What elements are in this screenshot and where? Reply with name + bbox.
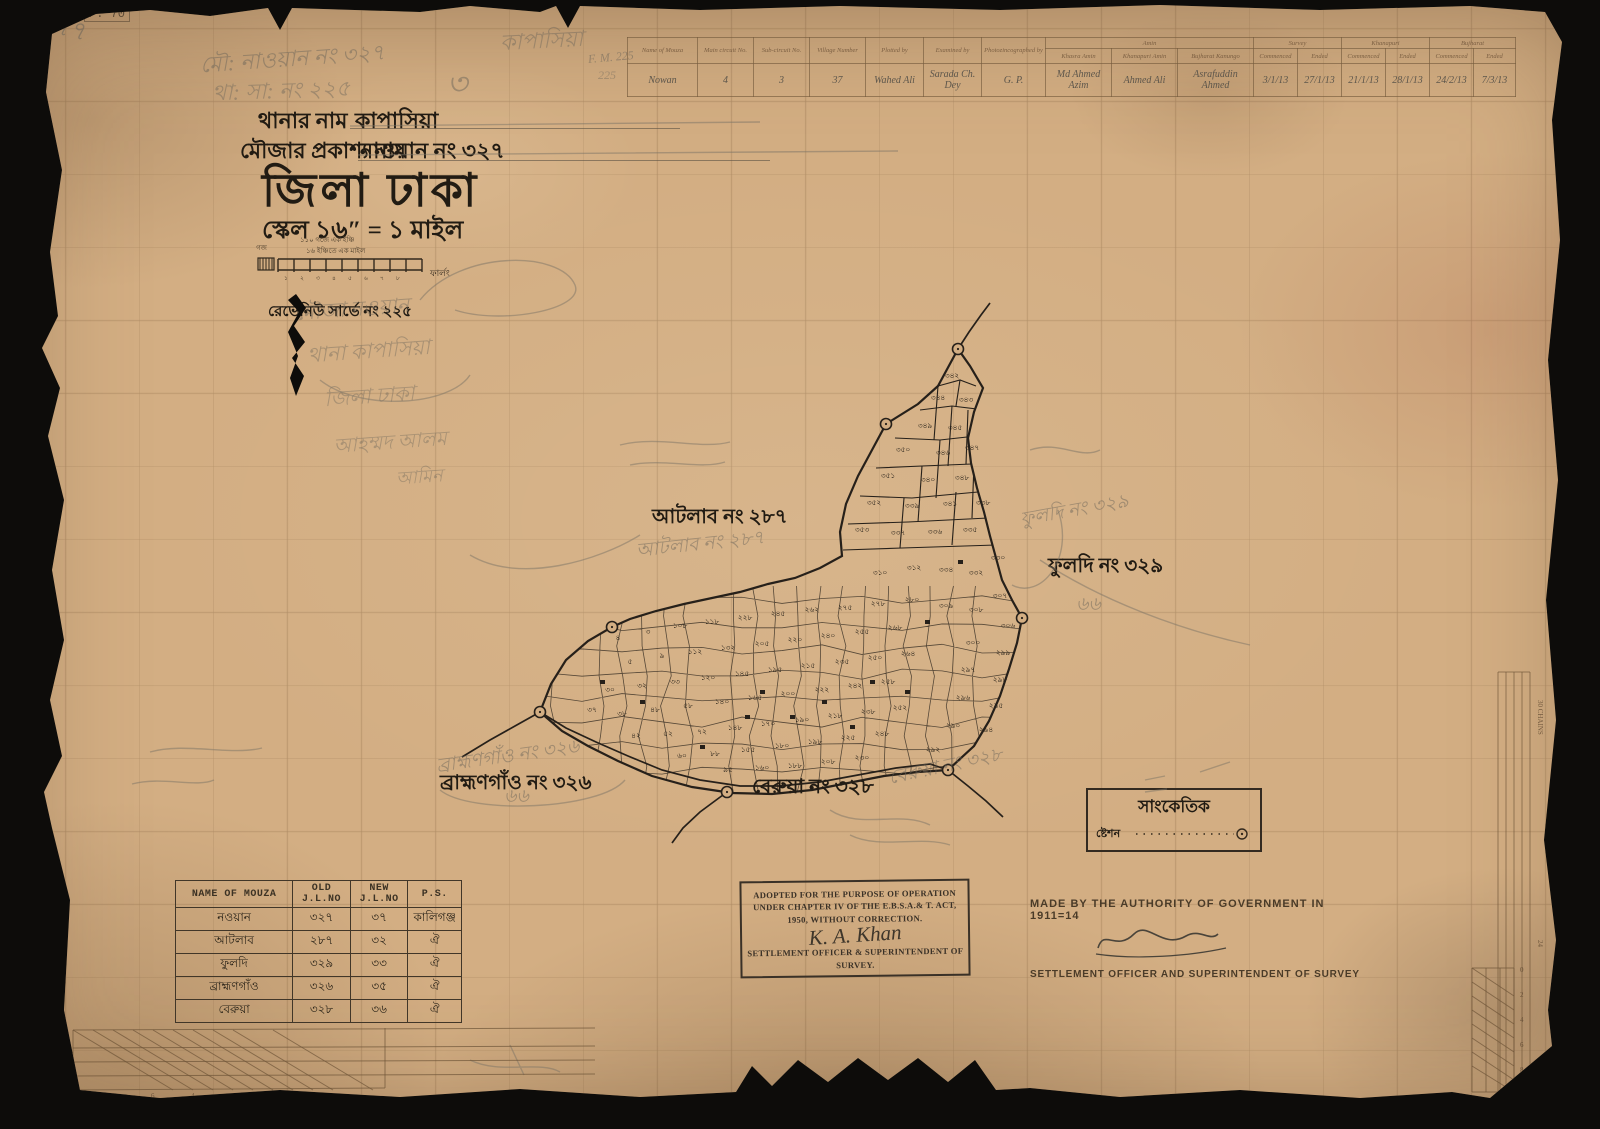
paper-tear xyxy=(280,292,316,408)
svg-text:১৯০: ১৯০ xyxy=(795,715,810,724)
svg-text:১৮০: ১৮০ xyxy=(775,741,790,750)
svg-text:৩৪২: ৩৪২ xyxy=(945,371,960,380)
svg-text:২৩০: ২৩০ xyxy=(855,753,870,762)
mouza-table-cell: ৩২৬ xyxy=(293,977,351,1000)
svg-text:৩০৯: ৩০৯ xyxy=(939,601,954,610)
svg-text:৩: ৩ xyxy=(646,627,651,636)
mouza-table-row: আটলাব২৮৭৩২ঐ xyxy=(176,931,462,954)
mouza-table-cell: ৩৩ xyxy=(350,954,408,977)
svg-text:2: 2 xyxy=(1520,991,1524,999)
svg-text:10: 10 xyxy=(71,1092,79,1098)
svg-text:৩৩৭: ৩৩৭ xyxy=(891,528,906,537)
svg-text:4: 4 xyxy=(1520,1016,1524,1024)
bottom-right-diagonal-scale: 0246810 xyxy=(1448,952,1558,1102)
svg-text:৫: ৫ xyxy=(628,657,633,666)
mouza-table-cell: কালিগঞ্জ xyxy=(408,908,462,931)
svg-text:২৯২: ২৯২ xyxy=(926,745,941,754)
svg-text:৬০: ৬০ xyxy=(677,751,687,760)
svg-text:৩০: ৩০ xyxy=(605,685,615,694)
pencil-note-line: থানা কাপাসিয়া xyxy=(306,330,442,374)
svg-text:0: 0 xyxy=(271,1092,275,1098)
authority-block: MADE BY THE AUTHORITY OF GOVERNMENT IN 1… xyxy=(1030,898,1370,980)
svg-text:৩৩৫: ৩৩৫ xyxy=(963,525,978,534)
mouza-table-header: OLD J.L.NO xyxy=(293,881,351,908)
mouza-table-cell: ঐ xyxy=(408,954,462,977)
pencil-note-line: আহম্মদ আলম xyxy=(333,424,449,465)
svg-text:0: 0 xyxy=(1520,966,1524,974)
map-sheet-paper: ৭৭ P. 70 কাপাসিয়া মৌ: নাওয়ান নং ৩২৭ থা… xyxy=(0,0,1600,1129)
svg-text:৫২: ৫২ xyxy=(663,729,673,738)
svg-text:৩৩২: ৩৩২ xyxy=(969,568,984,577)
legend-item-label: ষ্টেশন xyxy=(1096,825,1120,844)
svg-text:৮৮: ৮৮ xyxy=(710,749,721,758)
svg-text:২৯৭: ২৯৭ xyxy=(961,665,976,674)
stamp-line2: UNDER CHAPTER IV OF THE E.B.S.A.& T. ACT… xyxy=(746,899,964,914)
adoption-stamp: ADOPTED FOR THE PURPOSE OF OPERATION UND… xyxy=(739,879,970,979)
svg-text:20: 20 xyxy=(59,1072,67,1080)
svg-text:6: 6 xyxy=(151,1092,155,1098)
svg-text:৪২: ৪২ xyxy=(631,731,641,740)
svg-text:১৬৫: ১৬৫ xyxy=(748,693,763,702)
authority-signature xyxy=(1090,922,1260,962)
mouza-table-cell: ব্রাহ্মণগাঁও xyxy=(176,977,293,1000)
svg-text:5: 5 xyxy=(311,1092,315,1098)
mouza-table-cell: ২৮৭ xyxy=(293,931,351,954)
svg-text:৩৪৭: ৩৪৭ xyxy=(965,443,980,452)
svg-text:২৬৪: ২৬৪ xyxy=(901,649,916,658)
mouza-table-row: ব্রাহ্মণগাঁও৩২৬৩৫ঐ xyxy=(176,977,462,1000)
svg-text:২৫০: ২৫০ xyxy=(868,653,883,662)
svg-text:2: 2 xyxy=(231,1092,235,1098)
svg-text:২৯৫: ২৯৫ xyxy=(989,701,1004,710)
svg-text:১৬০: ১৬০ xyxy=(755,763,770,772)
svg-text:২২৮: ২২৮ xyxy=(738,613,754,622)
svg-text:৪৮: ৪৮ xyxy=(650,705,661,714)
svg-text:৩৪০: ৩৪০ xyxy=(921,475,936,484)
mouza-table-header: NAME OF MOUZA xyxy=(176,881,293,908)
svg-text:১৯৫: ১৯৫ xyxy=(768,665,783,674)
authority-line2: SETTLEMENT OFFICER AND SUPERINTENDENT OF… xyxy=(1030,969,1370,980)
svg-text:৩৩৬: ৩৩৬ xyxy=(928,527,943,536)
svg-text:২৩৮: ২৩৮ xyxy=(861,707,877,716)
svg-text:8: 8 xyxy=(1520,1066,1524,1074)
mouza-table-cell: ৩৫ xyxy=(350,977,408,1000)
pencil-note-line: আমিন xyxy=(395,461,451,496)
svg-text:৭২: ৭২ xyxy=(697,727,707,736)
svg-text:4: 4 xyxy=(191,1092,195,1098)
svg-text:২৯৪: ২৯৪ xyxy=(979,725,994,734)
svg-text:৩৪৩: ৩৪৩ xyxy=(959,395,974,404)
svg-text:৪: ৪ xyxy=(616,633,621,642)
svg-text:২৫৮: ২৫৮ xyxy=(881,677,897,686)
svg-text:৩৩৪: ৩৩৪ xyxy=(939,565,954,574)
svg-text:10: 10 xyxy=(1520,1091,1528,1099)
mouza-table-row: ফুলদি৩২৯৩৩ঐ xyxy=(176,954,462,977)
svg-text:১৯৮: ১৯৮ xyxy=(808,737,824,746)
mouza-list-table: NAME OF MOUZAOLD J.L.NONEW J.L.NOP.S.নওয… xyxy=(175,880,462,1023)
svg-text:২২২: ২২২ xyxy=(815,685,830,694)
svg-text:৩৩০: ৩৩০ xyxy=(991,553,1006,562)
margin-label-2: 20 xyxy=(1536,1085,1544,1093)
svg-text:৩৩৯: ৩৩৯ xyxy=(905,501,920,510)
svg-text:৩৪৮: ৩৪৮ xyxy=(955,473,971,482)
svg-text:৩০৭: ৩০৭ xyxy=(993,591,1008,600)
svg-text:৩৩: ৩৩ xyxy=(670,677,680,686)
svg-text:২২৫: ২২৫ xyxy=(841,733,856,742)
svg-text:২৪২: ২৪২ xyxy=(848,681,863,690)
svg-text:২৭৫: ২৭৫ xyxy=(838,603,853,612)
authority-line1: MADE BY THE AUTHORITY OF GOVERNMENT IN 1… xyxy=(1030,898,1370,922)
svg-text:২৫২: ২৫২ xyxy=(893,703,908,712)
pencil-note-line: জিলা ঢাকা xyxy=(323,375,445,418)
svg-text:২৯৬: ২৯৬ xyxy=(956,693,971,702)
svg-text:২৪৫: ২৪৫ xyxy=(771,609,786,618)
svg-text:৩৪৯: ৩৪৯ xyxy=(918,421,933,430)
svg-text:১৩২: ১৩২ xyxy=(721,643,736,652)
svg-text:6: 6 xyxy=(1520,1041,1524,1049)
map-roads xyxy=(462,303,1003,843)
svg-text:৫৮: ৫৮ xyxy=(683,701,694,710)
svg-text:২১৮: ২১৮ xyxy=(828,711,844,720)
svg-text:১৭০: ১৭০ xyxy=(761,719,776,728)
svg-text:২১৫: ২১৫ xyxy=(801,661,816,670)
svg-text:২৯০: ২৯০ xyxy=(946,721,961,730)
mouza-table-cell: ঐ xyxy=(408,931,462,954)
mouza-table-cell: ৩৭ xyxy=(350,908,408,931)
mouza-table-row: নওয়ান৩২৭৩৭কালিগঞ্জ xyxy=(176,908,462,931)
svg-text:৩৩৮: ৩৩৮ xyxy=(976,498,992,507)
mouza-table-cell: ৩২ xyxy=(350,931,408,954)
mouza-table-header: P.S. xyxy=(408,881,462,908)
svg-text:২৭৮: ২৭৮ xyxy=(871,599,887,608)
svg-text:২৯৯: ২৯৯ xyxy=(996,648,1011,657)
svg-text:80: 80 xyxy=(59,1030,67,1038)
svg-text:৩৭: ৩৭ xyxy=(587,705,597,714)
legend-title: সাংকেতিক xyxy=(1088,794,1260,822)
mouza-table-cell: আটলাব xyxy=(176,931,293,954)
svg-text:২৬২: ২৬২ xyxy=(805,605,820,614)
svg-text:৩২: ৩২ xyxy=(637,681,647,690)
svg-text:৩৫১: ৩৫১ xyxy=(881,471,896,480)
svg-text:১০৮: ১০৮ xyxy=(673,621,689,630)
margin-label-0: 30 CHAINS xyxy=(1536,700,1544,735)
svg-text:২৮০: ২৮০ xyxy=(905,595,920,604)
mouza-table-cell: নওয়ান xyxy=(176,908,293,931)
svg-text:১৮৮: ১৮৮ xyxy=(788,761,804,770)
svg-text:৩০৬: ৩০৬ xyxy=(1001,621,1016,630)
bottom-left-diagonal-scale: 80604020 10864205 xyxy=(55,1018,615,1098)
svg-text:8: 8 xyxy=(111,1092,115,1098)
mouza-table-cell: ৩২৯ xyxy=(293,954,351,977)
svg-text:৩১০: ৩১০ xyxy=(873,568,888,577)
svg-text:২২০: ২২০ xyxy=(788,635,803,644)
svg-text:১৪৫: ১৪৫ xyxy=(735,669,750,678)
svg-text:১৫৫: ১৫৫ xyxy=(741,745,756,754)
svg-text:১১২: ১১২ xyxy=(688,647,703,656)
plot-numbers: ৩৪২৩৪৪৩৪৩৩৪৯৩৪৫৩৫০৩৪৬৩৪৭৩৫১৩৪০৩৪৮৩৫২৩৩৯৩… xyxy=(587,371,1015,774)
svg-text:৯৫: ৯৫ xyxy=(723,765,733,774)
svg-text:১১৮: ১১৮ xyxy=(705,617,721,626)
svg-text:৩০৮: ৩০৮ xyxy=(969,605,985,614)
svg-text:১৪৮: ১৪৮ xyxy=(728,723,744,732)
legend-station-symbol xyxy=(1134,822,1254,844)
svg-text:২০৫: ২০৫ xyxy=(755,639,770,648)
svg-text:২৪৮: ২৪৮ xyxy=(875,729,891,738)
svg-text:40: 40 xyxy=(59,1058,67,1066)
mouza-table-cell: ৩২৭ xyxy=(293,908,351,931)
svg-text:৩৪১: ৩৪১ xyxy=(943,499,958,508)
svg-text:৯: ৯ xyxy=(660,651,665,660)
svg-text:২৫৫: ২৫৫ xyxy=(855,627,870,636)
svg-text:৩৪৪: ৩৪৪ xyxy=(931,393,946,402)
pencil-note-block: মৌজা নওয়ান থানা কাপাসিয়া জিলা ঢাকা আহম… xyxy=(293,287,450,502)
mouza-table-cell: ফুলদি xyxy=(176,954,293,977)
svg-text:২৩৫: ২৩৫ xyxy=(835,657,850,666)
svg-text:60: 60 xyxy=(59,1044,67,1052)
svg-text:৩৫০: ৩৫০ xyxy=(896,445,911,454)
svg-text:২০৮: ২০৮ xyxy=(821,757,837,766)
svg-text:২৪০: ২৪০ xyxy=(821,631,836,640)
svg-text:৩৫২: ৩৫২ xyxy=(867,498,882,507)
map-parcels xyxy=(542,380,1022,796)
svg-text:২৬৮: ২৬৮ xyxy=(888,623,904,632)
svg-text:৩৪৫: ৩৪৫ xyxy=(948,423,963,432)
svg-text:২০০: ২০০ xyxy=(781,689,796,698)
margin-label-1: 24 xyxy=(1536,940,1544,948)
svg-text:৩৮: ৩৮ xyxy=(617,709,628,718)
legend-box: সাংকেতিক ষ্টেশন xyxy=(1086,788,1262,852)
svg-text:১৪০: ১৪০ xyxy=(715,697,730,706)
svg-text:১২০: ১২০ xyxy=(701,673,716,682)
svg-text:৩১২: ৩১২ xyxy=(907,563,922,572)
svg-text:৩০০: ৩০০ xyxy=(966,638,981,647)
svg-text:৩৪৬: ৩৪৬ xyxy=(936,448,951,457)
mouza-table-cell: ঐ xyxy=(408,977,462,1000)
svg-text:২৯৮: ২৯৮ xyxy=(993,675,1009,684)
mouza-table-header: NEW J.L.NO xyxy=(350,881,408,908)
svg-text:৩৫৩: ৩৫৩ xyxy=(855,525,870,534)
